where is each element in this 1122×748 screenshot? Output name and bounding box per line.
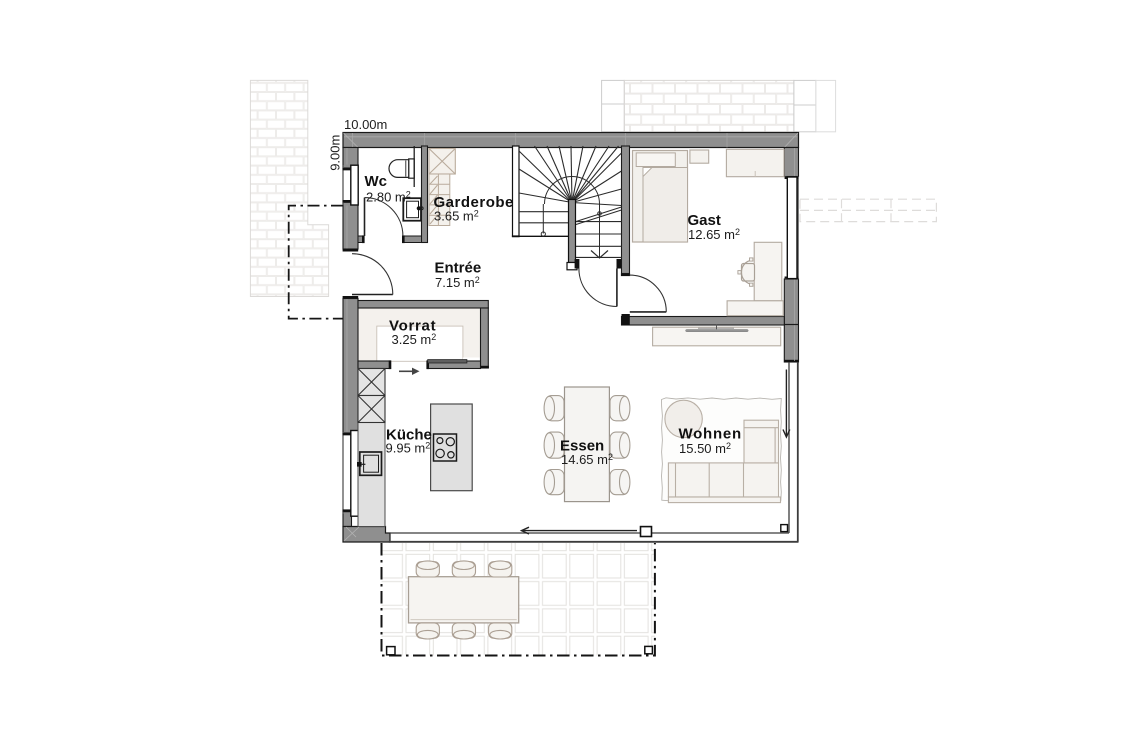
svg-text:9.95 m2: 9.95 m2 [386, 441, 431, 456]
svg-text:3.25 m2: 3.25 m2 [392, 332, 437, 347]
svg-text:10.00m: 10.00m [344, 117, 387, 132]
svg-text:Wohnen: Wohnen [679, 426, 742, 443]
svg-text:2.80 m2: 2.80 m2 [366, 190, 411, 205]
svg-text:3.65 m2: 3.65 m2 [434, 209, 479, 224]
svg-text:12.65 m2: 12.65 m2 [688, 227, 740, 242]
svg-text:Wc: Wc [365, 173, 388, 190]
svg-text:14.65 m2: 14.65 m2 [561, 452, 613, 467]
svg-text:7.15 m2: 7.15 m2 [435, 275, 480, 290]
svg-text:15.50 m2: 15.50 m2 [679, 441, 731, 456]
svg-text:Entrée: Entrée [435, 260, 482, 277]
svg-text:9.00m: 9.00m [328, 135, 343, 171]
